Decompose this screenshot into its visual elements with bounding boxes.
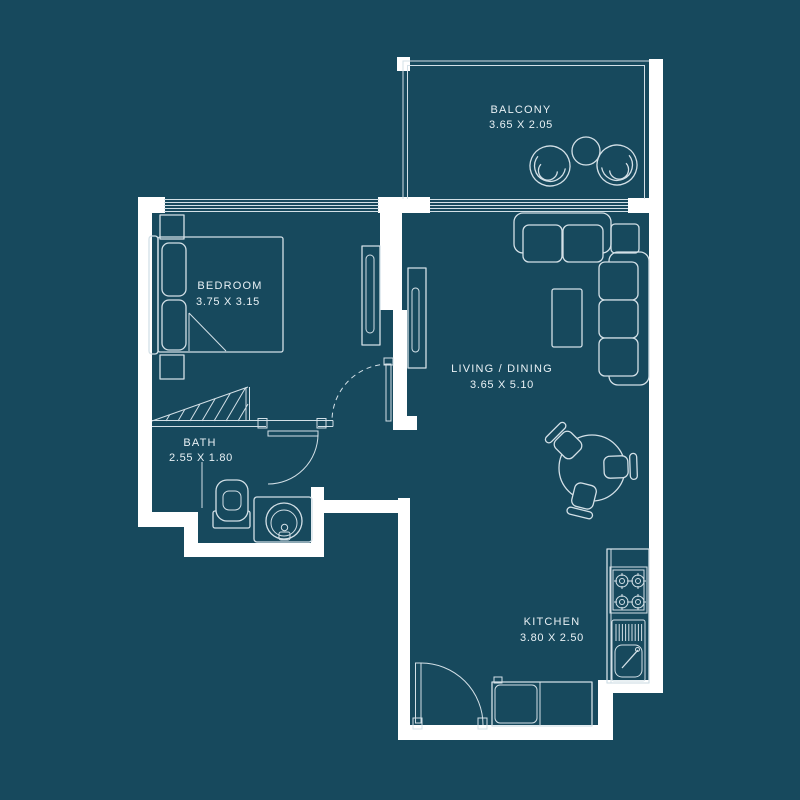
floor-plan: BALCONY 3.65 X 2.05 BEDROOM 3.75 X 3.15 … — [0, 0, 800, 800]
wall-segment — [380, 213, 402, 310]
bath-door-symbol — [268, 431, 318, 484]
nightstand-symbol — [160, 215, 184, 379]
room-name: KITCHEN — [524, 616, 581, 628]
room-dimensions: 2.55 X 1.80 — [169, 452, 233, 464]
dining-table-symbol — [544, 421, 637, 520]
entrance-door-symbol — [413, 663, 487, 729]
kitchen-label: KITCHEN 3.80 X 2.50 — [520, 616, 584, 644]
balcony-chair-left-symbol — [524, 140, 577, 193]
bedroom-label: BEDROOM 3.75 X 3.15 — [196, 280, 263, 308]
balcony-sliding-door — [430, 200, 628, 212]
wall-segment — [393, 416, 417, 430]
dining-chair-symbol — [544, 421, 586, 463]
bed-symbol — [149, 236, 283, 354]
floor-plan-page: BALCONY 3.65 X 2.05 BEDROOM 3.75 X 3.15 … — [0, 0, 800, 800]
kitchen-counter — [607, 549, 649, 683]
toilet-symbol — [213, 480, 250, 528]
bath-sink-symbol — [254, 497, 312, 542]
room-dimensions: 3.65 X 2.05 — [489, 119, 553, 131]
hob-symbol — [610, 567, 647, 613]
wardrobe-symbol — [362, 246, 380, 345]
balcony-table-symbol — [572, 137, 600, 165]
coffee-table-symbol — [552, 289, 582, 347]
tv-unit-symbol — [408, 268, 426, 368]
bath-fixtures — [202, 462, 312, 542]
wall-segment — [324, 500, 402, 513]
room-dimensions: 3.75 X 3.15 — [196, 296, 260, 308]
bath-label: BATH 2.55 X 1.80 — [169, 437, 233, 464]
room-name: LIVING / DINING — [451, 363, 553, 375]
wall-segment — [398, 498, 410, 739]
room-dimensions: 3.80 X 2.50 — [520, 632, 584, 644]
living-dining-label: LIVING / DINING 3.65 X 5.10 — [451, 363, 553, 391]
dining-chair-symbol — [604, 453, 638, 480]
bedroom-door-symbol — [332, 358, 393, 421]
wall-segment — [184, 512, 198, 545]
bedroom-window — [164, 200, 379, 212]
wall-segment — [311, 487, 324, 557]
wall-segment — [393, 310, 407, 420]
wall-segment — [628, 198, 649, 213]
room-name: BATH — [183, 437, 216, 449]
wall-segment — [649, 59, 663, 693]
wall-segment — [184, 543, 324, 557]
balcony-chair-right-symbol — [591, 139, 644, 192]
shower-symbol — [152, 387, 250, 421]
washer-counter-symbol — [492, 677, 592, 726]
dining-chair-symbol — [566, 481, 599, 519]
room-name: BEDROOM — [197, 280, 262, 292]
room-name: BALCONY — [491, 104, 552, 116]
room-dimensions: 3.65 X 5.10 — [470, 379, 534, 391]
kitchen-sink-symbol — [612, 620, 645, 681]
wall-segment — [378, 197, 430, 213]
balcony-label: BALCONY 3.65 X 2.05 — [489, 104, 553, 131]
wall-segment — [398, 725, 613, 740]
wall-segment — [138, 197, 152, 515]
